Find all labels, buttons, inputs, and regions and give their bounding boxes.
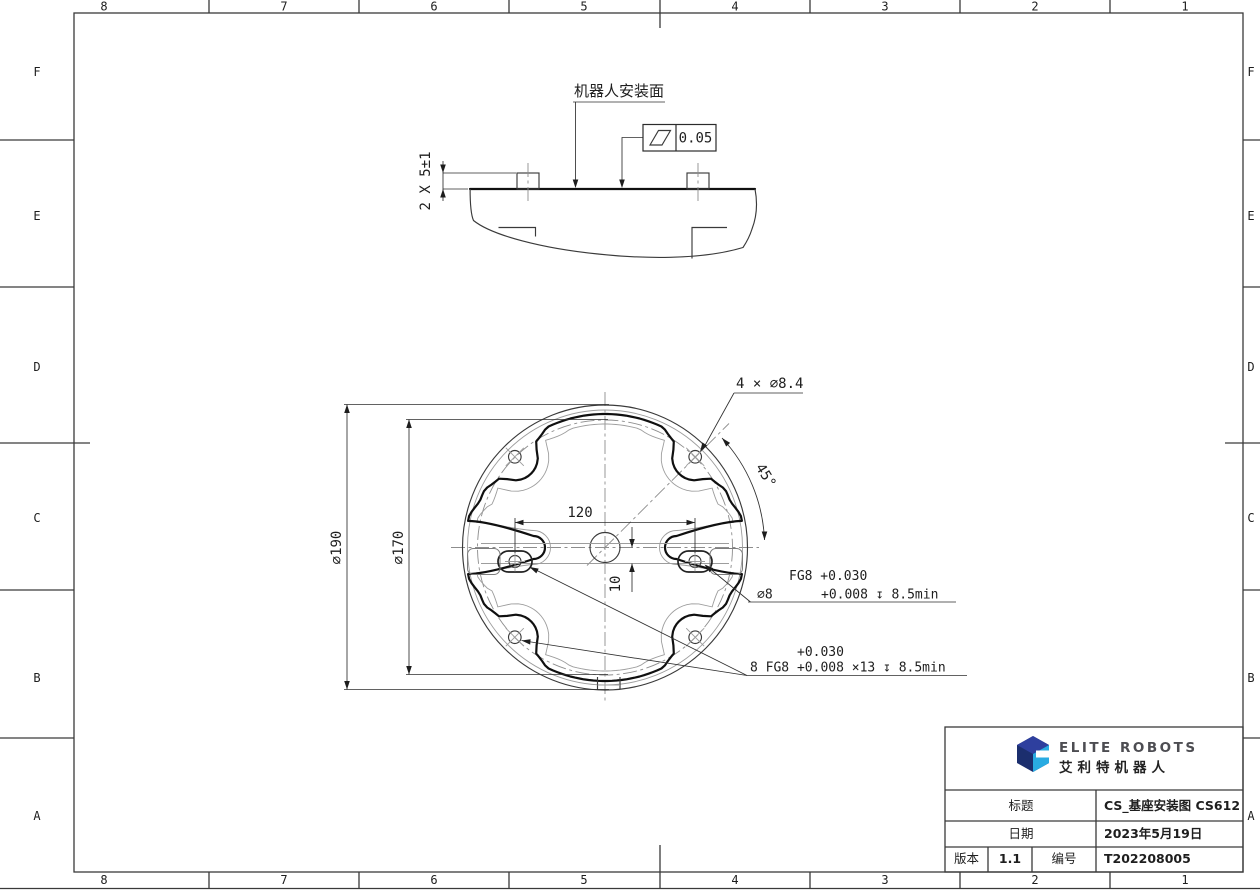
zone-col-bottom: 2 [1031,873,1038,887]
flatness-symbol-icon [650,131,671,146]
bolt-holes-text: 4 × ⌀8.4 [736,376,803,392]
plan-view: ⌀190 ⌀170 120 10 45° [329,376,967,703]
note1-row2: +0.008 ↧ 8.5min [821,588,938,603]
title-value: CS_基座安装图 CS612 [1104,798,1240,814]
zone-col-top: 1 [1181,0,1188,14]
dim-45-text: 45° [752,461,779,491]
zone-row-right: E [1247,209,1254,223]
tolerance-arrow [619,180,625,189]
flatness-value: 0.05 [679,131,713,147]
leader-arrow [573,180,579,189]
drawing-sheet: 8 7 6 5 4 3 2 1 8 7 6 5 4 3 2 1 F E D C … [0,0,1260,891]
pin-dim-text: 2 X 5±1 [418,151,434,210]
zone-col-bottom: 3 [881,873,888,887]
zone-col-bottom: 6 [430,873,437,887]
zone-row-right: C [1247,511,1254,525]
note2-row1: +0.030 [797,645,844,660]
zone-col-top: 8 [100,0,107,14]
pin-dim-arrow-top [440,165,446,174]
zone-col-bottom: 8 [100,873,107,887]
number-label: 编号 [1051,851,1076,866]
zone-col-top: 4 [731,0,738,14]
zone-row-right: F [1247,65,1254,79]
callout-fit-holes: +0.030 8 FG8 +0.008 ×13 ↧ 8.5min [522,567,968,676]
dim-120-text: 120 [567,505,592,521]
left-zone-ticks [0,140,90,738]
zone-col-bottom: 5 [580,873,587,887]
callout-bolt-holes: 4 × ⌀8.4 [700,376,803,452]
pin-height-dimension: 2 X 5±1 [418,151,516,210]
zone-row-right: B [1247,671,1254,685]
dim-pin-offset: 10 [608,527,635,592]
note2-row2: 8 FG8 +0.008 ×13 ↧ 8.5min [750,661,946,676]
title-block: ELITE ROBOTS 艾利特机器人 标题 CS_基座安装图 CS612 日期… [945,727,1243,872]
base-profile-outline [470,189,756,257]
date-label: 日期 [1008,826,1033,841]
brand-name-en: ELITE ROBOTS [1059,740,1198,756]
pin-centerlines [528,163,698,203]
zone-row-right: A [1247,809,1255,823]
zone-row-left: C [33,511,40,525]
zone-col-top: 3 [881,0,888,14]
date-value: 2023年5月19日 [1104,826,1202,841]
brand-name-cn: 艾利特机器人 [1059,759,1170,776]
zone-col-top: 7 [280,0,287,14]
zone-col-top: 2 [1031,0,1038,14]
dim-outer-diameter: ⌀190 [329,405,609,690]
zone-col-top: 6 [430,0,437,14]
note1-dia: ⌀8 [757,588,773,603]
mounting-surface-label: 机器人安装面 [574,82,664,100]
note1-row1: FG8 +0.030 [789,569,867,584]
pin-dim-lines [443,161,516,201]
elite-robots-logo-icon [1017,736,1050,772]
drawing-canvas: 8 7 6 5 4 3 2 1 8 7 6 5 4 3 2 1 F E D C … [0,0,1260,891]
dim-190-text: ⌀190 [329,531,345,565]
dim-170-text: ⌀170 [391,531,407,565]
zone-row-left: A [33,809,41,823]
zone-col-bottom: 1 [1181,873,1188,887]
top-zone-ticks [209,0,1110,28]
zone-col-top: 5 [580,0,587,14]
version-value: 1.1 [999,851,1021,866]
zone-row-left: F [33,65,40,79]
version-label: 版本 [954,851,980,866]
tolerance-leader [622,138,643,186]
side-view: 机器人安装面 0.05 2 X 5±1 [418,82,756,259]
zone-row-left: E [33,209,40,223]
zone-col-bottom: 7 [280,873,287,887]
pin-dim-arrow-bottom [440,189,446,198]
title-label: 标题 [1008,798,1034,813]
number-value: T202208005 [1104,851,1191,866]
flatness-callout: 0.05 [619,125,716,189]
zone-col-bottom: 4 [731,873,738,887]
dim-10-text: 10 [608,576,624,593]
centerlines [451,392,759,703]
zone-row-left: D [33,360,40,374]
zone-row-right: D [1247,360,1254,374]
bottom-notch [598,677,621,690]
zone-row-left: B [33,671,40,685]
